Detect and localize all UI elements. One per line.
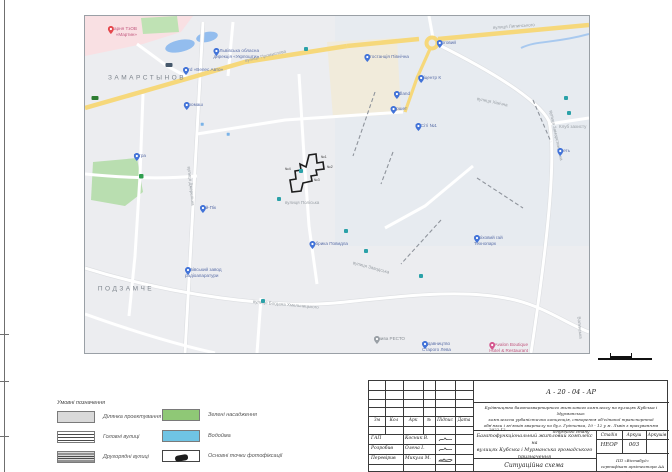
sheet-number: 003 bbox=[629, 442, 640, 448]
transit-stop-icon bbox=[364, 249, 368, 253]
road-label: вулиця Хімічна bbox=[476, 96, 508, 107]
scale-bar-tick bbox=[631, 353, 632, 356]
poi-label: Автостанція Північна bbox=[364, 54, 409, 60]
stage-value: НЕОР bbox=[600, 442, 617, 448]
greenery-swatch bbox=[162, 409, 200, 421]
road-shield-icon bbox=[92, 96, 99, 100]
secondary-streets-swatch bbox=[57, 451, 95, 463]
map-pin-icon bbox=[437, 40, 443, 48]
doc-code: А - 20 - 04 - АР bbox=[546, 388, 596, 396]
water-poi-icon bbox=[227, 133, 230, 136]
name-developed: Олена І. bbox=[405, 446, 425, 451]
poi: Львівський заводрадіоапаратури bbox=[185, 267, 222, 279]
transit-stop-icon bbox=[261, 299, 265, 303]
poi: Львівська обласнадирекція «Укрпошти» bbox=[213, 48, 259, 60]
poi: Midland bbox=[394, 91, 410, 97]
district-label: ЗАМАРСТЫНОВ bbox=[108, 75, 186, 82]
frame-tick bbox=[0, 381, 9, 382]
col-zm: Зм bbox=[374, 418, 380, 423]
col-data: Дата bbox=[458, 418, 471, 423]
col-pidpys: Підпис bbox=[437, 418, 453, 423]
map-pin-icon bbox=[134, 153, 140, 161]
scale-bar-tick bbox=[610, 353, 611, 356]
map-overlay: ЗАМАРСТЫНОВПОДЗАМЧЕвулиця Промисловавули… bbox=[85, 16, 589, 353]
legend-label: Головні вулиці bbox=[103, 434, 139, 440]
road-label: Волинська bbox=[577, 316, 584, 339]
poi-label: Ford «Велес Авто» bbox=[183, 67, 223, 73]
poi: Кметь bbox=[557, 148, 570, 154]
road-label: вулиця Заводська bbox=[352, 260, 390, 275]
col-ark: Арк bbox=[409, 418, 418, 423]
site-point-label: №4 bbox=[285, 167, 291, 171]
map-pin-icon bbox=[474, 235, 480, 243]
stamp-date-note: 2022.12 bbox=[489, 427, 506, 432]
legend-item-main-streets: Головні вулиці bbox=[57, 431, 139, 443]
poi: Лікарня ТзОВ«Мартин» bbox=[108, 26, 137, 38]
map-pin-icon bbox=[415, 123, 421, 131]
poi: Ін-Сіті №1 bbox=[415, 123, 437, 129]
map-pin-icon bbox=[391, 106, 397, 114]
role-checked: Перевірив bbox=[371, 456, 396, 461]
scale-bar bbox=[598, 351, 652, 360]
poi: Avalon BoutiqueHotel & Restaurant bbox=[489, 342, 528, 354]
transit-stop-icon bbox=[419, 274, 423, 278]
map-pin-icon bbox=[185, 267, 191, 275]
poi: Тетра bbox=[134, 153, 146, 159]
site-point-label: №2 bbox=[327, 165, 333, 169]
map-pin-icon bbox=[108, 26, 114, 34]
legend-item-plot: Ділянка проектування bbox=[57, 411, 161, 423]
water-poi-icon bbox=[201, 123, 204, 126]
map-pin-icon bbox=[213, 48, 219, 56]
legend-label: Другорядні вулиці bbox=[103, 454, 149, 460]
frame-tick bbox=[0, 436, 9, 437]
road-label: Клуб захисту bbox=[559, 124, 586, 129]
poi: Агромаш bbox=[184, 102, 203, 108]
poi: Горіховий гайТехнопарк bbox=[474, 235, 503, 247]
map-pin-icon bbox=[394, 91, 400, 99]
poi: ВидавництвоСтарого Лева bbox=[422, 341, 451, 353]
road-label: вулиця Джерельна bbox=[187, 166, 196, 206]
map-pin-icon bbox=[364, 54, 370, 62]
title-block: Зм Кол Арк № Підпис Дата ГАП Косник В. Р… bbox=[368, 380, 668, 472]
transit-stop-icon bbox=[344, 229, 348, 233]
scale-bar-line bbox=[598, 358, 652, 360]
col-kol: Кол bbox=[390, 418, 399, 423]
poi: Торговий bbox=[437, 40, 456, 46]
district-label: ПОДЗАМЧЕ bbox=[98, 286, 154, 293]
role-developed: Розробив bbox=[371, 446, 393, 451]
map-pin-icon bbox=[418, 75, 424, 83]
map-pin-icon bbox=[183, 67, 189, 75]
sheets-col-header: Аркушів bbox=[648, 432, 667, 437]
poi: Ford «Велес Авто» bbox=[183, 67, 223, 73]
frame-tick bbox=[0, 334, 9, 335]
legend-label: Ділянка проектування bbox=[103, 414, 161, 420]
legend-item-greenery: Зелені насадження bbox=[162, 409, 257, 421]
signature bbox=[438, 446, 453, 453]
poi-label: Львівська обласнадирекція «Укрпошти» bbox=[213, 48, 259, 60]
road-label: вулиця Липинського bbox=[493, 22, 535, 30]
legend-label: Основні точки фотофіксації bbox=[208, 453, 282, 459]
water-swatch bbox=[162, 430, 200, 442]
project-name: Багатофункціональний житловий комплекс н… bbox=[476, 434, 593, 462]
map-pin-icon bbox=[422, 341, 428, 349]
name-checked: Микула М. bbox=[405, 456, 431, 461]
col-num: № bbox=[427, 418, 431, 423]
poi: Жнива РЕСТО bbox=[374, 336, 405, 342]
legend-label: Зелені насадження bbox=[208, 412, 257, 418]
map-pin-icon bbox=[489, 342, 495, 350]
poi: Фабрика Повидла bbox=[309, 241, 348, 247]
site-point-label: №3 bbox=[314, 178, 320, 182]
transit-stop-icon bbox=[277, 197, 281, 201]
legend-item-water: Водойма bbox=[162, 430, 231, 442]
sheet-frame-line bbox=[4, 0, 5, 472]
transit-stop-icon bbox=[567, 111, 571, 115]
map-pin-icon bbox=[309, 241, 315, 249]
photo-points-swatch bbox=[162, 450, 200, 462]
plot-swatch bbox=[57, 411, 95, 423]
transit-stop-icon bbox=[564, 96, 568, 100]
map-pin-icon bbox=[200, 205, 206, 213]
road-label: вулиця Поліська bbox=[285, 200, 319, 205]
transit-stop-icon bbox=[299, 169, 303, 173]
signature bbox=[438, 456, 453, 463]
poi: Автостанція Північна bbox=[364, 54, 409, 60]
drawing-sheet: ЗАМАРСТЫНОВПОДЗАМЧЕвулиця Промисловавули… bbox=[0, 0, 672, 472]
sheet-col-header: Аркуш bbox=[627, 432, 642, 437]
scale-bar-segment bbox=[610, 356, 632, 358]
legend-title: Умовні позначення bbox=[57, 400, 105, 406]
site-point-label: №1 bbox=[321, 155, 327, 159]
name-gap: Косник В. bbox=[405, 436, 428, 441]
situation-map: ЗАМАРСТЫНОВПОДЗАМЧЕвулиця Промисловавули… bbox=[84, 15, 590, 354]
transit-stop-icon bbox=[304, 47, 308, 51]
legend-item-secondary-streets: Другорядні вулиці bbox=[57, 451, 149, 463]
organization: ПП «Вістабуд» сертифікат архітектора АА … bbox=[598, 458, 667, 472]
road-shield-icon bbox=[166, 63, 173, 67]
map-pin-icon bbox=[557, 148, 563, 156]
main-streets-swatch bbox=[57, 431, 95, 443]
poi: Фуршет bbox=[391, 106, 407, 112]
legend-item-photo-points: Основні точки фотофіксації bbox=[162, 450, 282, 462]
map-pin-icon bbox=[374, 336, 380, 344]
poi: Чай-Пік bbox=[200, 205, 216, 211]
role-gap: ГАП bbox=[371, 436, 381, 441]
legend-label: Водойма bbox=[208, 433, 231, 439]
poi: Епіцентр К bbox=[418, 75, 441, 81]
map-pin-icon bbox=[184, 102, 190, 110]
sheet-title: Ситуаційна схема bbox=[504, 462, 563, 469]
signature bbox=[438, 436, 453, 443]
stage-col-header: Стадія bbox=[601, 432, 617, 437]
